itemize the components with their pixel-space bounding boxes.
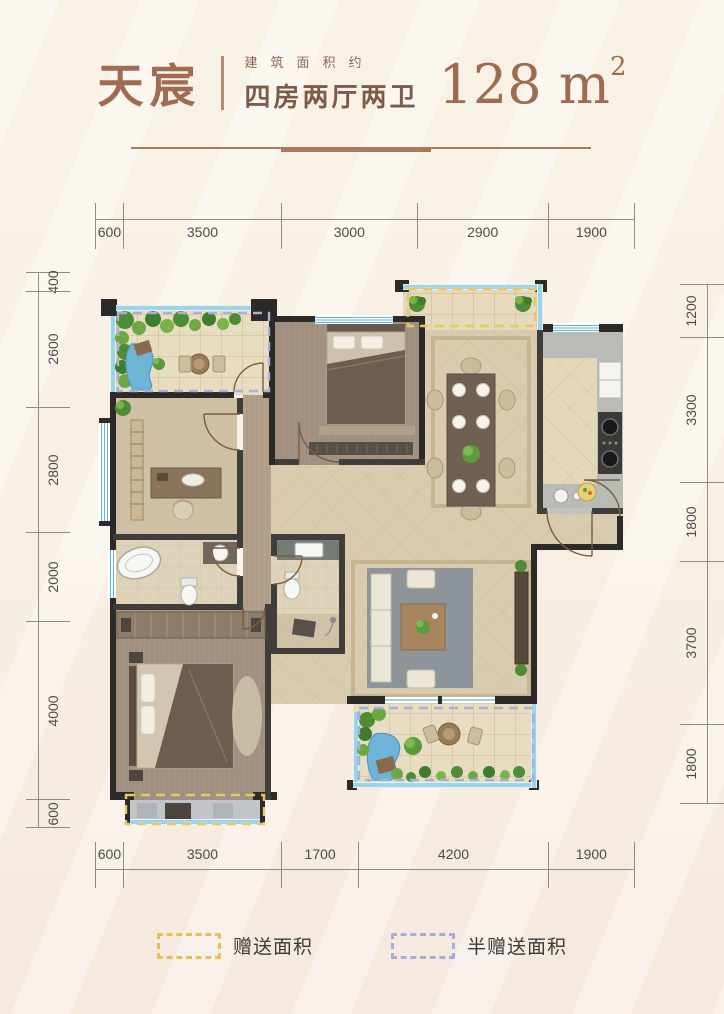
- room-layout-label: 四房两厅两卫: [244, 77, 418, 114]
- dim-value: 600: [45, 802, 61, 825]
- dim-value: 2000: [45, 561, 61, 592]
- floor-plan: [95, 272, 635, 830]
- dim-value: 4000: [45, 695, 61, 726]
- dim-value: 2600: [45, 334, 61, 365]
- dim-value: 3500: [187, 224, 218, 240]
- area-exponent: 2: [610, 52, 627, 82]
- dim-value: 1900: [576, 846, 607, 862]
- half-gift-area-label: 半赠送面积: [467, 932, 567, 959]
- gift-area-label: 赠送面积: [233, 932, 313, 959]
- dim-value: 3300: [683, 395, 699, 426]
- dim-value: 600: [98, 846, 121, 862]
- dimension-bottom: 600 3500 1700 4200 1900: [95, 842, 635, 888]
- title-divider: [221, 56, 224, 110]
- legend-gift: 赠送面积: [157, 932, 313, 959]
- dimension-right: 1200 3300 1800 3700 1800: [680, 284, 724, 804]
- dim-value: 1900: [576, 224, 607, 240]
- dim-value: 1700: [305, 846, 336, 862]
- dim-value: 600: [98, 224, 121, 240]
- area-number: 128 m: [439, 53, 610, 116]
- dim-value: 1800: [683, 748, 699, 779]
- plan-stats: 建筑面积约 四房两厅两卫: [244, 52, 418, 114]
- dim-value: 4200: [438, 846, 469, 862]
- header-rule-accent: [281, 147, 431, 152]
- half-gift-area-swatch: [391, 933, 455, 959]
- plan-title: 天宸: [97, 50, 201, 116]
- floor-plan-drawing: [95, 272, 635, 830]
- header-rule: [131, 147, 591, 149]
- dim-value: 1200: [683, 296, 699, 327]
- area-label: 建筑面积约: [244, 52, 418, 71]
- dim-value: 3700: [683, 627, 699, 658]
- bay-window-seat: [130, 800, 260, 821]
- floorplan-page: 天宸 建筑面积约 四房两厅两卫 128 m2 600 3500 3000 290…: [0, 0, 724, 1014]
- dim-value: 1800: [683, 507, 699, 538]
- area-value: 128 m2: [439, 54, 627, 112]
- dim-value: 3500: [187, 846, 218, 862]
- gift-area-swatch: [157, 933, 221, 959]
- dim-value: 2800: [45, 454, 61, 485]
- legend: 赠送面积 半赠送面积: [0, 932, 724, 959]
- dim-value: 2900: [467, 224, 498, 240]
- legend-half-gift: 半赠送面积: [391, 932, 567, 959]
- dim-value: 3000: [334, 224, 365, 240]
- dimension-left: 400 2600 2800 2000 4000 600: [26, 272, 70, 828]
- header: 天宸 建筑面积约 四房两厅两卫 128 m2: [0, 50, 724, 116]
- dimension-top: 600 3500 3000 2900 1900: [95, 203, 635, 249]
